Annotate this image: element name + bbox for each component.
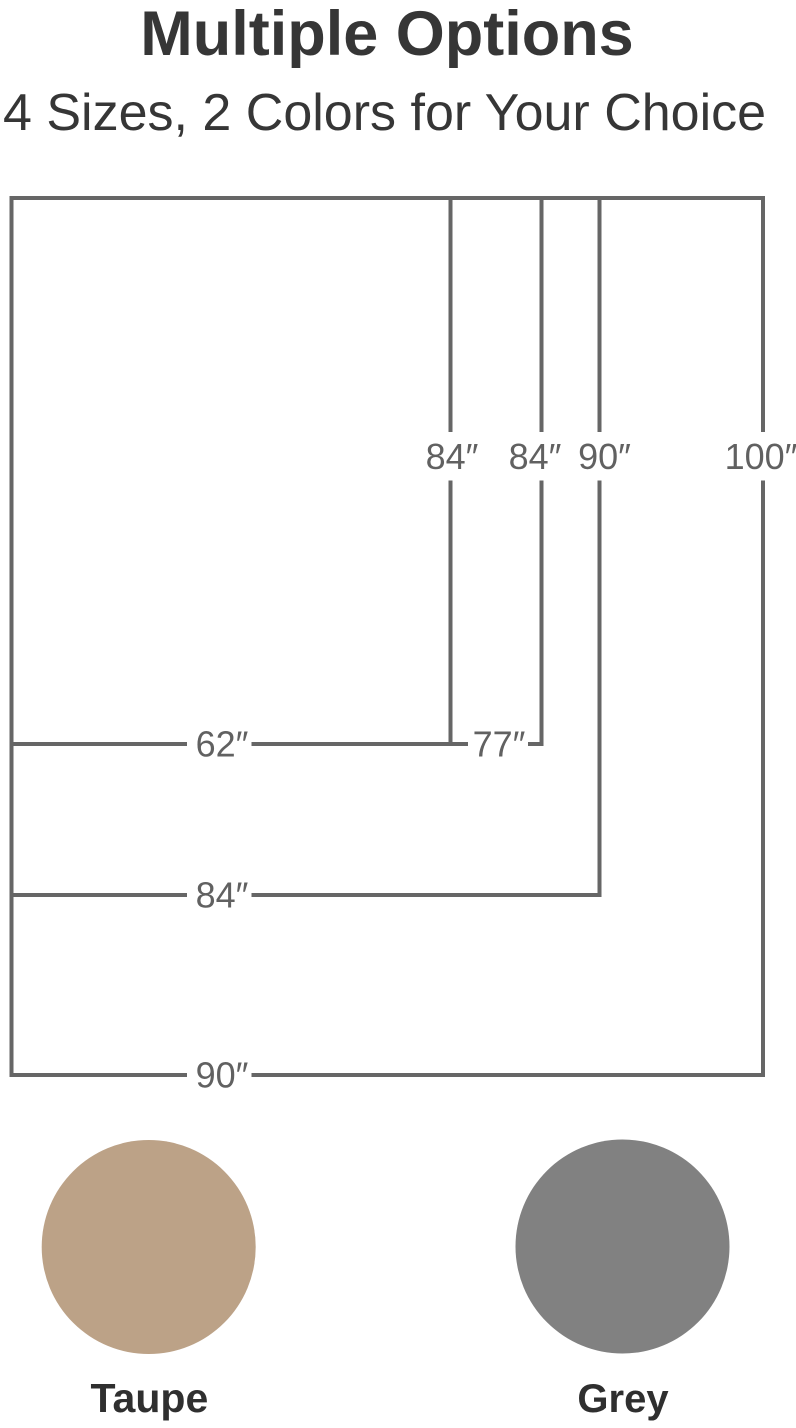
svg-text:62″: 62″ [196,724,249,765]
svg-text:90″: 90″ [196,1055,249,1096]
svg-text:84″: 84″ [426,436,479,477]
svg-text:100″: 100″ [725,436,796,477]
svg-text:Taupe: Taupe [91,1375,209,1421]
svg-text:77″: 77″ [473,724,526,765]
svg-text:Grey: Grey [577,1377,669,1421]
svg-text:84″: 84″ [509,436,562,477]
svg-text:4 Sizes, 2 Colors for Your Cho: 4 Sizes, 2 Colors for Your Choice [3,84,766,142]
svg-text:90″: 90″ [578,436,631,477]
svg-text:Multiple Options: Multiple Options [140,0,633,69]
svg-text:84″: 84″ [196,875,249,916]
